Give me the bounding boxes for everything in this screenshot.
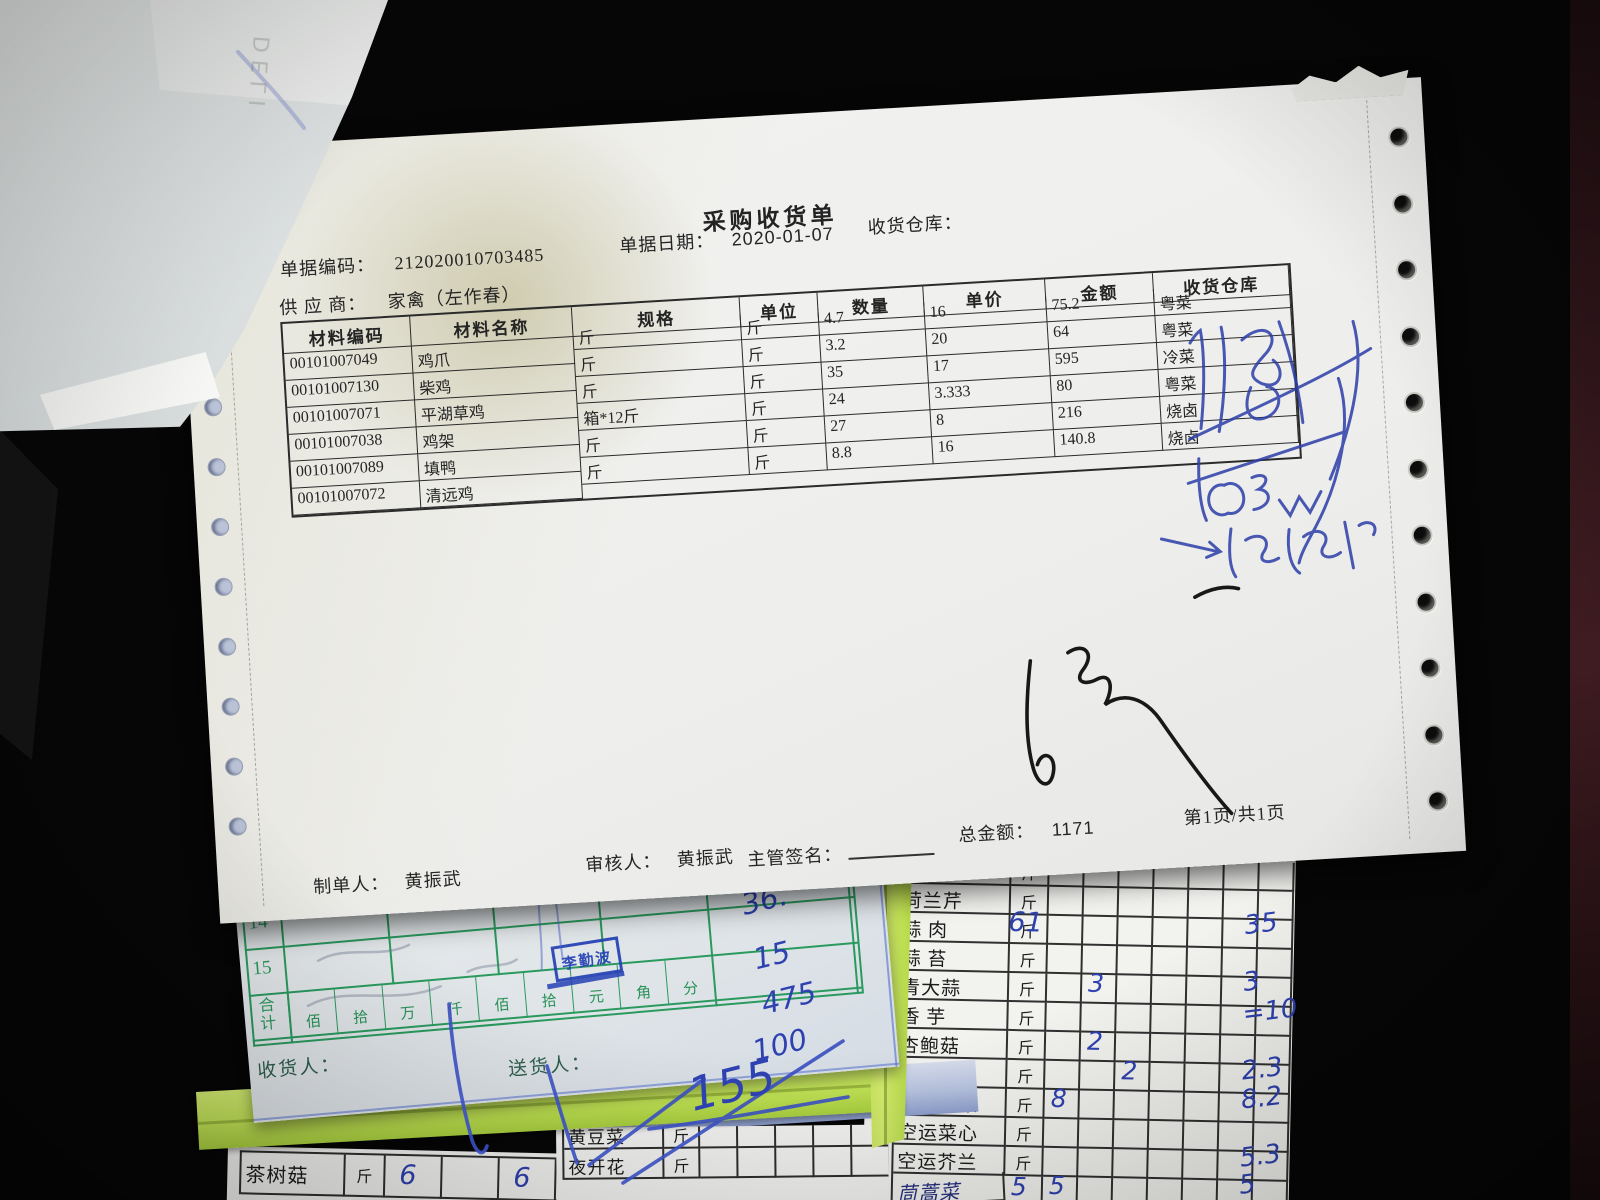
blue-pen-strokes: [0, 0, 1600, 1200]
photo-of-receipts: 西 芹斤荷兰芹斤蒜 肉斤蒜 苔斤青大蒜斤香 芋斤杏鲍菇斤红彩椒斤水东芥菜斤空运菜…: [0, 0, 1600, 1200]
